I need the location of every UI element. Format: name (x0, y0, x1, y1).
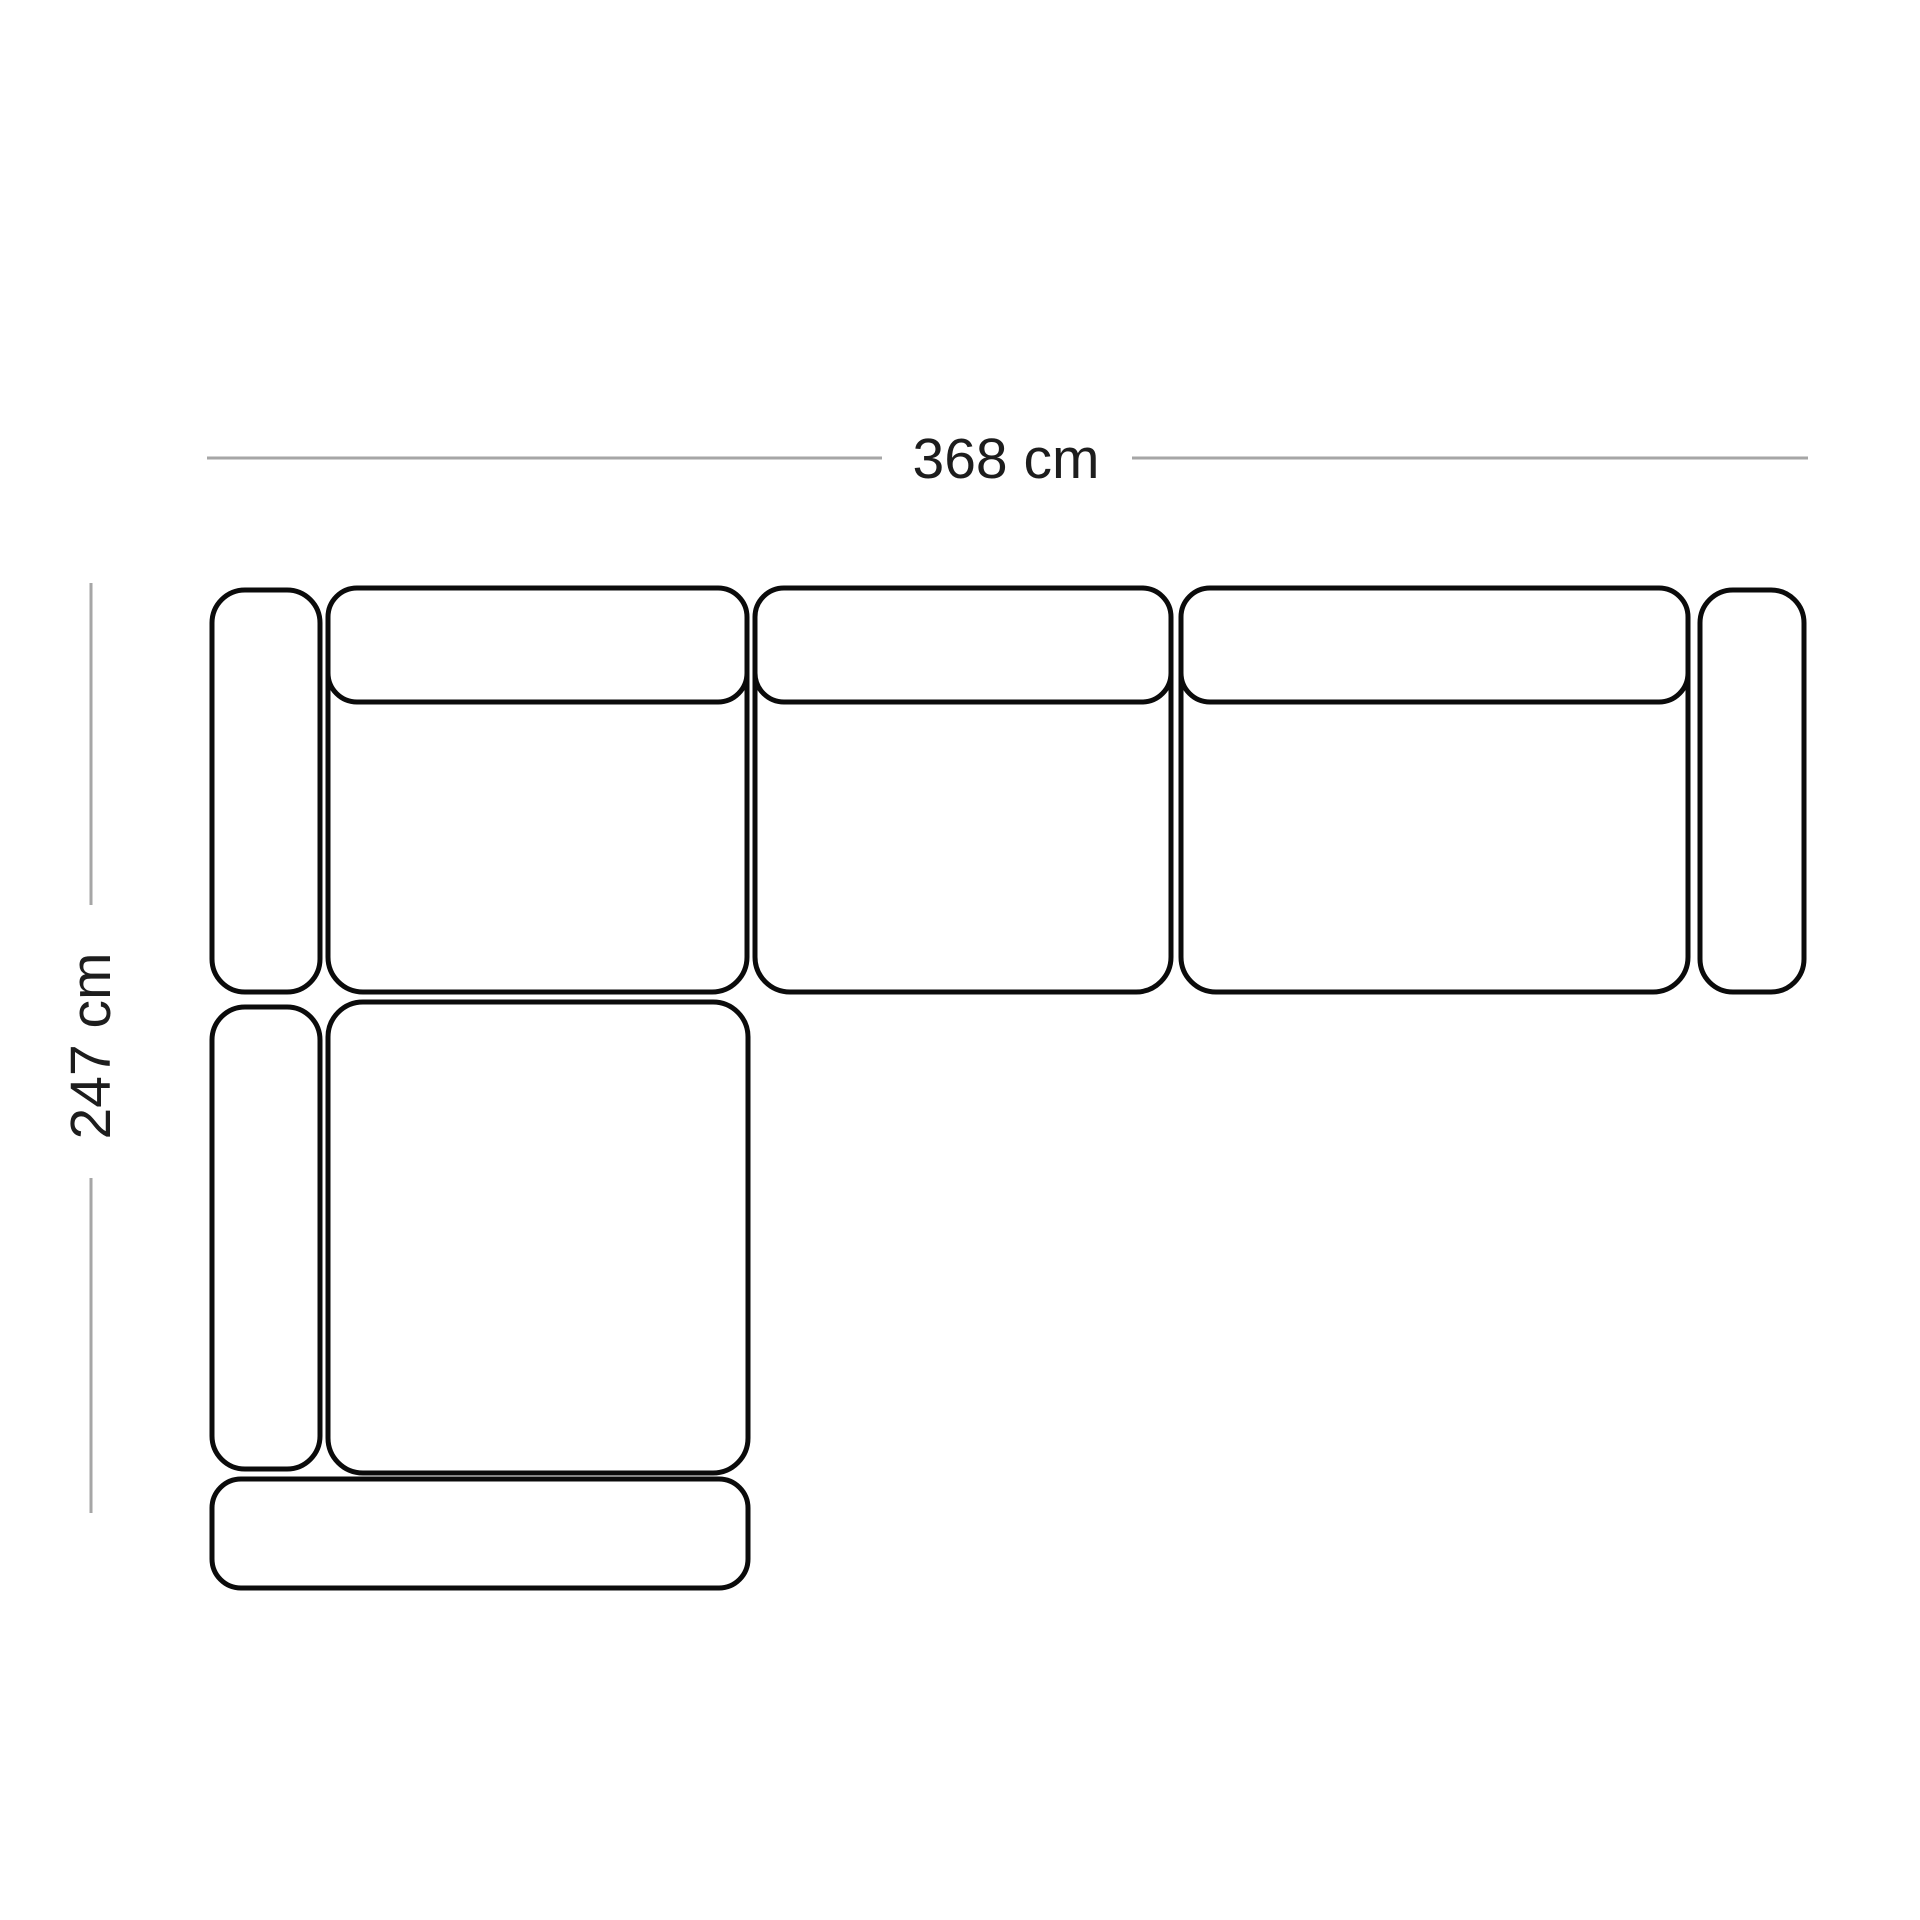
sofa-dimension-diagram: 368 cm 247 cm (0, 0, 1920, 1920)
width-dimension: 368 cm (207, 427, 1808, 491)
width-dimension-label: 368 cm (913, 427, 1100, 491)
seat-module-1-backrest (328, 588, 747, 702)
seat-module-2-backrest (755, 588, 1171, 702)
seat-module-3-backrest (1181, 588, 1688, 702)
left-armrest (212, 590, 320, 992)
chaise-footrest-strip (212, 1479, 748, 1588)
sofa-top-row (212, 588, 1804, 992)
depth-dimension: 247 cm (59, 583, 123, 1513)
chaise-armrest (212, 1007, 320, 1469)
right-armrest (1700, 590, 1804, 992)
sofa-chaise-column (212, 1002, 748, 1588)
chaise-seat (328, 1002, 748, 1473)
depth-dimension-label: 247 cm (59, 953, 123, 1140)
